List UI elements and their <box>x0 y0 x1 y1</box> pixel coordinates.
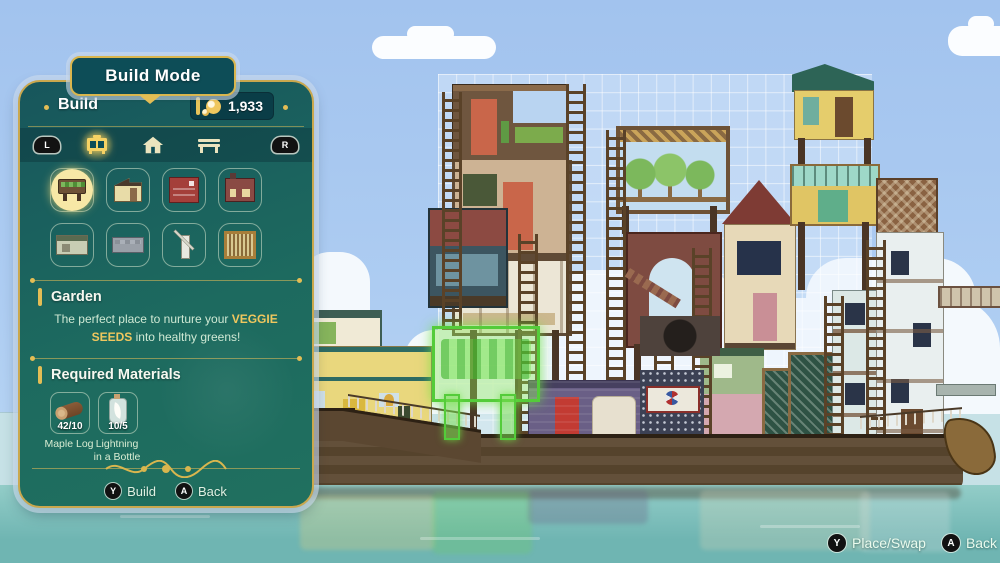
materials-heading: Required Materials <box>51 367 181 383</box>
tab-buildings[interactable] <box>82 132 112 158</box>
panel-actions: Y Build A Back <box>20 483 312 499</box>
back-action-label: Back <box>198 484 227 499</box>
sign-logo <box>665 391 679 405</box>
cloud <box>372 36 496 59</box>
build-item-foundry[interactable] <box>218 168 262 212</box>
red-roof <box>722 180 796 224</box>
red-roof-house <box>724 224 796 350</box>
material-count: 42/10 <box>51 421 89 432</box>
field-icon <box>112 237 144 253</box>
orchard-building <box>616 126 730 214</box>
a-button-icon: A <box>176 483 192 499</box>
far-right-tower <box>876 232 944 462</box>
y-button-icon: Y <box>105 483 121 499</box>
reflection <box>528 490 648 524</box>
shop-sign <box>646 386 700 413</box>
log-icon <box>56 400 85 420</box>
controller-hints: Y Place/Swap A Back <box>828 534 997 552</box>
category-tab-bar: L R <box>20 128 312 162</box>
build-action-label: Build <box>127 484 156 499</box>
stilt-post <box>864 138 871 164</box>
gold-dot <box>44 105 49 110</box>
back-action[interactable]: A Back <box>176 483 227 499</box>
cabin-icon <box>56 235 88 255</box>
build-item-kitchen[interactable] <box>162 168 206 212</box>
material-lightning-bottle: 10/5 <box>98 392 138 434</box>
cabinet-icon <box>85 135 109 155</box>
vent-building <box>640 316 720 356</box>
loom-icon <box>224 231 256 259</box>
panel-section-title: Build <box>58 96 98 114</box>
panel-header: Build 1,933 <box>20 92 312 122</box>
selection-name-header: Garden <box>38 288 102 306</box>
greenhouse <box>790 164 880 226</box>
build-item-garden[interactable] <box>50 168 94 212</box>
kitchen-icon <box>169 177 199 203</box>
guesthouse <box>794 90 874 140</box>
hint-back[interactable]: A Back <box>942 534 997 552</box>
garden-silhouette <box>441 339 531 379</box>
stilt-post <box>798 222 805 290</box>
build-item-house[interactable] <box>106 168 150 212</box>
hint-label: Place/Swap <box>852 535 926 551</box>
reflection <box>300 495 435 550</box>
divider <box>28 126 304 127</box>
reflection <box>432 492 532 554</box>
placement-highlight-garden[interactable] <box>432 326 540 402</box>
hint-label: Back <box>966 535 997 551</box>
stilt-post <box>798 138 805 164</box>
build-mode-title: Build Mode <box>70 56 236 96</box>
build-item-windmill[interactable] <box>162 223 206 267</box>
y-button-icon: Y <box>828 534 846 552</box>
banner-chevron-icon <box>139 95 161 104</box>
currency-accent-bar <box>196 97 200 115</box>
placement-highlight-leg <box>500 394 516 440</box>
build-panel: Build 1,933 L R <box>18 80 314 508</box>
material-maple-log: 42/10 <box>50 392 90 434</box>
bench-icon <box>197 136 221 154</box>
build-item-grid <box>50 168 262 267</box>
gold-dot <box>283 105 288 110</box>
house-building-icon <box>114 178 142 202</box>
water-streak <box>120 515 210 518</box>
lounge-building <box>428 208 508 308</box>
windmill-arm <box>938 286 1000 308</box>
tab-furniture[interactable] <box>194 132 224 158</box>
placement-highlight-leg <box>444 394 460 440</box>
left-bumper-button[interactable]: L <box>34 137 60 153</box>
build-item-guest-cabin[interactable] <box>50 223 94 267</box>
selection-name: Garden <box>51 289 102 305</box>
build-action[interactable]: Y Build <box>105 483 156 499</box>
section-divider <box>30 358 302 359</box>
gold-accent-bar <box>38 366 42 384</box>
glim-icon <box>206 99 221 114</box>
material-count: 10/5 <box>99 421 137 432</box>
house-icon <box>142 135 164 155</box>
water-streak <box>760 525 860 528</box>
materials-header: Required Materials <box>38 366 181 384</box>
currency-amount: 1,933 <box>228 98 263 114</box>
tower1-roof-terrace <box>452 84 568 162</box>
side-ledge <box>936 384 996 396</box>
ladder <box>824 296 844 456</box>
a-button-icon: A <box>942 534 960 552</box>
hint-place-swap[interactable]: Y Place/Swap <box>828 534 926 552</box>
right-bumper-button[interactable]: R <box>272 137 298 153</box>
build-item-field[interactable] <box>106 223 150 267</box>
tab-improvements[interactable] <box>138 132 168 158</box>
decorative-flourish <box>20 460 312 478</box>
water-streak <box>420 537 540 540</box>
lattice-top <box>876 178 938 236</box>
gold-accent-bar <box>38 288 42 306</box>
currency-display: 1,933 <box>190 92 274 120</box>
build-item-loom[interactable] <box>218 223 262 267</box>
cloud <box>948 26 1000 56</box>
garden-icon <box>58 179 86 201</box>
section-divider <box>30 280 302 281</box>
material-name: Maple Log <box>44 438 94 451</box>
selection-description: The perfect place to nurture your VEGGIE… <box>38 310 294 346</box>
windmill-icon <box>171 233 197 257</box>
ladder <box>442 92 462 330</box>
stilt-post <box>710 206 717 234</box>
foundry-icon <box>225 178 255 202</box>
